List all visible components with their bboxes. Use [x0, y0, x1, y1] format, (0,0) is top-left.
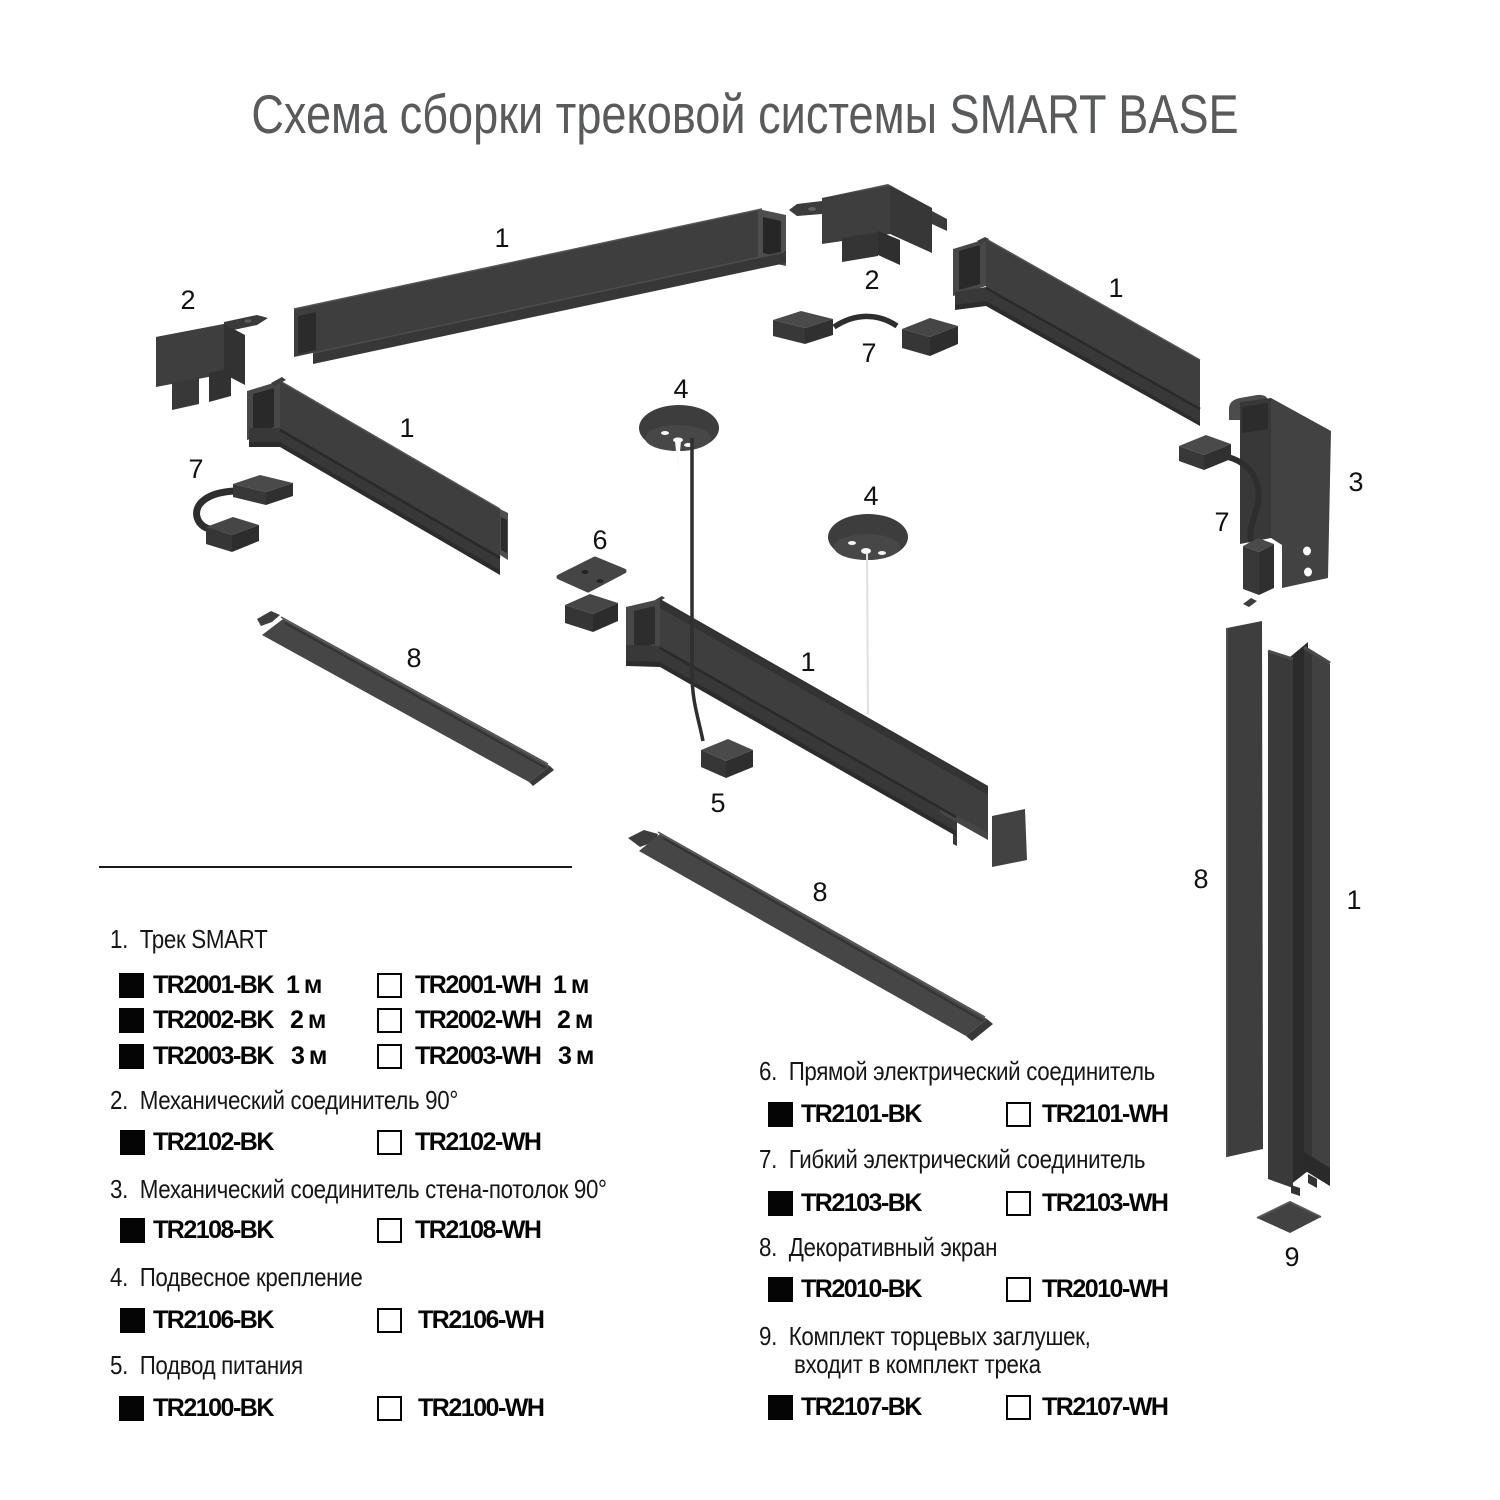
svg-text:7: 7: [1214, 507, 1229, 537]
svg-text:9: 9: [1284, 1242, 1299, 1272]
svg-text:8: 8: [1193, 864, 1208, 894]
svg-text:1: 1: [399, 413, 414, 443]
svg-text:6: 6: [592, 525, 607, 555]
svg-text:4: 4: [863, 481, 878, 511]
svg-text:5: 5: [710, 788, 725, 818]
svg-text:1: 1: [1108, 273, 1123, 303]
svg-text:4: 4: [673, 374, 688, 404]
svg-text:8: 8: [812, 877, 827, 907]
svg-text:8: 8: [406, 643, 421, 673]
svg-text:1: 1: [494, 223, 509, 253]
svg-text:7: 7: [188, 454, 203, 484]
svg-text:1: 1: [1346, 885, 1361, 915]
svg-text:3: 3: [1348, 467, 1363, 497]
svg-text:2: 2: [180, 285, 195, 315]
svg-text:2: 2: [864, 265, 879, 295]
svg-text:1: 1: [800, 647, 815, 677]
svg-text:7: 7: [861, 338, 876, 368]
